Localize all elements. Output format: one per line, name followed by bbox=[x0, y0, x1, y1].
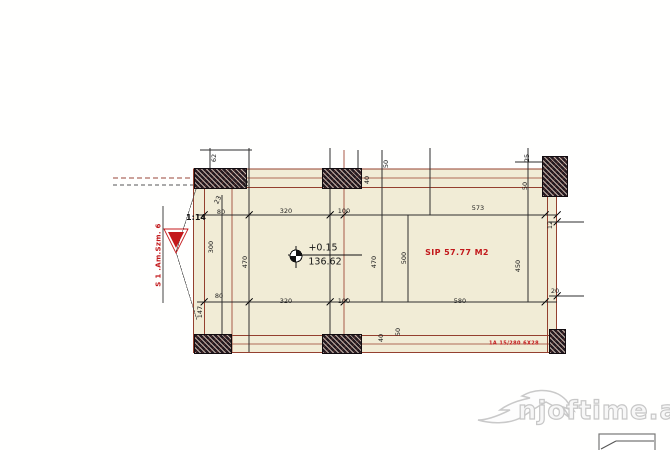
watermark-text: njoftime.al bbox=[518, 398, 670, 424]
corner-detail-box bbox=[599, 434, 655, 450]
watermark-bird-icon bbox=[0, 0, 670, 450]
floor-plan-canvas: 6240238030080147470470500450320100573320… bbox=[0, 0, 670, 450]
